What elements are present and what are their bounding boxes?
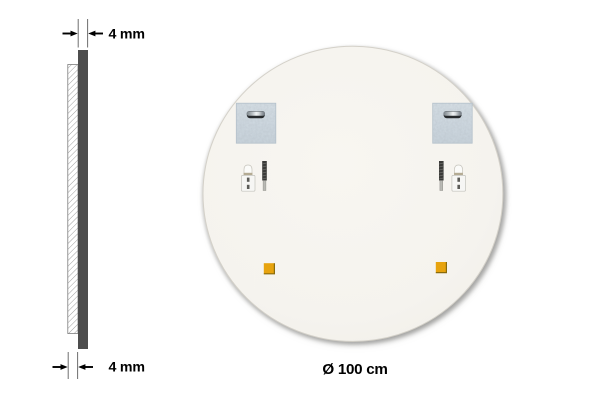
svg-text:4 mm: 4 mm [109, 360, 145, 376]
svg-text:Ø 100 cm: Ø 100 cm [322, 361, 387, 378]
svg-text:4 mm: 4 mm [109, 27, 145, 43]
